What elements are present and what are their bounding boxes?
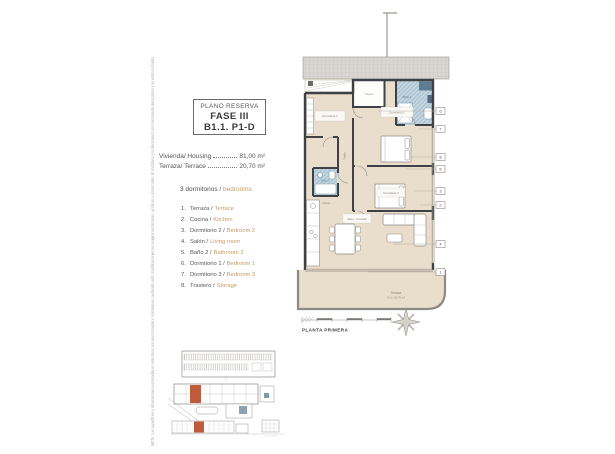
plan-marker: 6: [436, 108, 445, 115]
bathtub: [315, 184, 336, 194]
terrace: Terraza S.U.: 20,70 m²: [298, 270, 445, 309]
bedrooms-count: 3 dormitorios / bedrooms: [180, 186, 252, 193]
room-name-es: Trastero /: [190, 283, 215, 289]
bedroom-2-label: Dormitorio 2: [322, 114, 338, 118]
room-number: 4.: [181, 237, 190, 248]
room-name-en: Bathroom 2: [214, 250, 244, 256]
area-summary: Vivienda/ Housing 81,00 m² Terraza/ Terr…: [159, 152, 265, 172]
bedrooms-count-es: 3 dormitorios /: [180, 186, 221, 193]
room-list-item: 3.Dormitorio 2 /Bedroom 2: [181, 226, 255, 237]
dotted-leader: [208, 167, 238, 168]
dotted-leader: [213, 157, 237, 158]
room-number: 8.: [181, 281, 190, 292]
storage-label: Trastero: [365, 93, 374, 96]
plan-marker: 3: [436, 188, 445, 195]
floor-plan: Terraza S.U.: 20,70 m² Trastero Baño 1: [293, 8, 463, 353]
bedroom-1-bed: [381, 136, 411, 162]
living-room-label: Salón - Comedor: [347, 217, 367, 221]
plan-marker: 8: [436, 154, 445, 161]
area-label: Terraza/ Terrace: [159, 162, 206, 172]
shelf: [428, 95, 433, 103]
bathroom-2-label: Baño 2: [321, 179, 330, 183]
siteplan-block-outline: [182, 351, 275, 381]
plan-marker: 4: [436, 241, 445, 248]
north-arrow-icon: [392, 308, 420, 336]
room-list-item: 8.Trastero /Storage: [181, 281, 255, 292]
area-label: Vivienda/ Housing: [159, 152, 211, 162]
room-name-es: Salón /: [190, 239, 208, 245]
storage-shaft: Trastero: [353, 80, 385, 107]
highlighted-unit-elevation: [194, 422, 204, 433]
room-name-es: Cocina /: [190, 217, 211, 223]
boundary-line: [383, 13, 397, 57]
vanity: [419, 82, 432, 91]
dining-table: [330, 224, 361, 254]
floor-level-label: PLANTA PRIMERA: [302, 328, 348, 333]
toilet: [424, 108, 432, 119]
siteplan-elevation: [170, 420, 284, 436]
hallway-label: Pasillo: [344, 152, 347, 160]
area-value: 81,00 m²: [239, 152, 265, 162]
plan-marker: 2: [436, 202, 445, 209]
entry-gallery: [305, 80, 353, 92]
kitchen-counter: [307, 200, 320, 266]
room-name-es: Dormitorio 3 /: [190, 272, 225, 278]
room-list-item: 2.Cocina /Kitchen: [181, 215, 255, 226]
unit-label: B1.1. P1-D: [194, 122, 265, 133]
room-name-en: Bedroom 2: [227, 228, 255, 234]
area-row: Terraza/ Terrace 20,70 m²: [159, 162, 265, 172]
plan-markers: 6 7 8 5 3 2 4 1: [436, 108, 445, 276]
room-name-es: Terraza /: [190, 206, 213, 212]
highlighted-unit: [190, 385, 201, 403]
plan-reserve-heading: PLANO RESERVA: [194, 103, 265, 110]
toilet: [329, 171, 335, 179]
room-name-es: Baño 2 /: [190, 250, 212, 256]
detail-block: [262, 420, 279, 432]
room-name-en: Bedroom 1: [227, 261, 255, 267]
room-number: 3.: [181, 226, 190, 237]
room-list-item: 6.Dormitorio 1 /Bedroom 1: [181, 259, 255, 270]
room-list-item: 4.Salón /Living room: [181, 237, 255, 248]
hatched-party-wall: [303, 13, 449, 79]
room-name-es: Dormitorio 2 /: [190, 228, 225, 234]
room-number: 6.: [181, 259, 190, 270]
room-name-es: Dormitorio 1 /: [190, 261, 225, 267]
area-value: 20,70 m²: [239, 162, 265, 172]
site-key-plan: [166, 348, 296, 443]
bathroom-1: Baño 1: [396, 80, 433, 125]
terrace-label: Terraza: [391, 291, 402, 295]
area-row: Vivienda/ Housing 81,00 m²: [159, 152, 265, 162]
pool: [196, 407, 218, 414]
kitchen-label: Cocina: [322, 201, 331, 205]
terrace-area-label: S.U.: 20,70 m²: [387, 296, 405, 300]
document-canvas: NOTA: Las superficies y dimensiones expr…: [0, 0, 615, 454]
room-name-en: Bedroom 3: [227, 272, 255, 278]
siteplan-floor-strip: [174, 384, 274, 418]
bedroom-3-label: Dormitorio 3: [383, 191, 399, 195]
vertical-disclaimer-text: NOTA: Las superficies y dimensiones expr…: [150, 56, 155, 446]
column: [308, 81, 313, 86]
room-list-item: 1.Terraza /Terrace: [181, 204, 255, 215]
room-name-en: Kitchen: [213, 217, 232, 223]
bathroom-1-label: Baño 1: [403, 95, 412, 99]
room-number: 5.: [181, 248, 190, 259]
coffee-table: [387, 234, 402, 242]
room-list-item: 5.Baño 2 /Bathroom 2: [181, 248, 255, 259]
vertical-disclaimer: NOTA: Las superficies y dimensiones expr…: [145, 50, 159, 450]
title-block: PLANO RESERVA FASE III B1.1. P1-D: [193, 99, 266, 135]
room-list-item: 7.Dormitorio 3 /Bedroom 3: [181, 270, 255, 281]
room-name-en: Terrace: [215, 206, 234, 212]
room-number: 7.: [181, 270, 190, 281]
washbasin: [318, 173, 323, 178]
scale-bar: [302, 317, 391, 323]
bedrooms-count-en: bedrooms: [223, 186, 252, 193]
room-list: 1.Terraza /Terrace 2.Cocina /Kitchen 3.D…: [181, 204, 255, 292]
room-name-en: Living room: [210, 239, 240, 245]
wardrobe: [307, 98, 314, 134]
plan-marker: 1: [436, 269, 445, 276]
bathroom-2: Baño 2: [314, 169, 337, 195]
plan-marker: 7: [436, 126, 445, 133]
room-number: 1.: [181, 204, 190, 215]
room-name-en: Storage: [217, 283, 237, 289]
plan-marker: 5: [436, 166, 445, 173]
phase-label: FASE III: [194, 111, 265, 122]
room-number: 2.: [181, 215, 190, 226]
